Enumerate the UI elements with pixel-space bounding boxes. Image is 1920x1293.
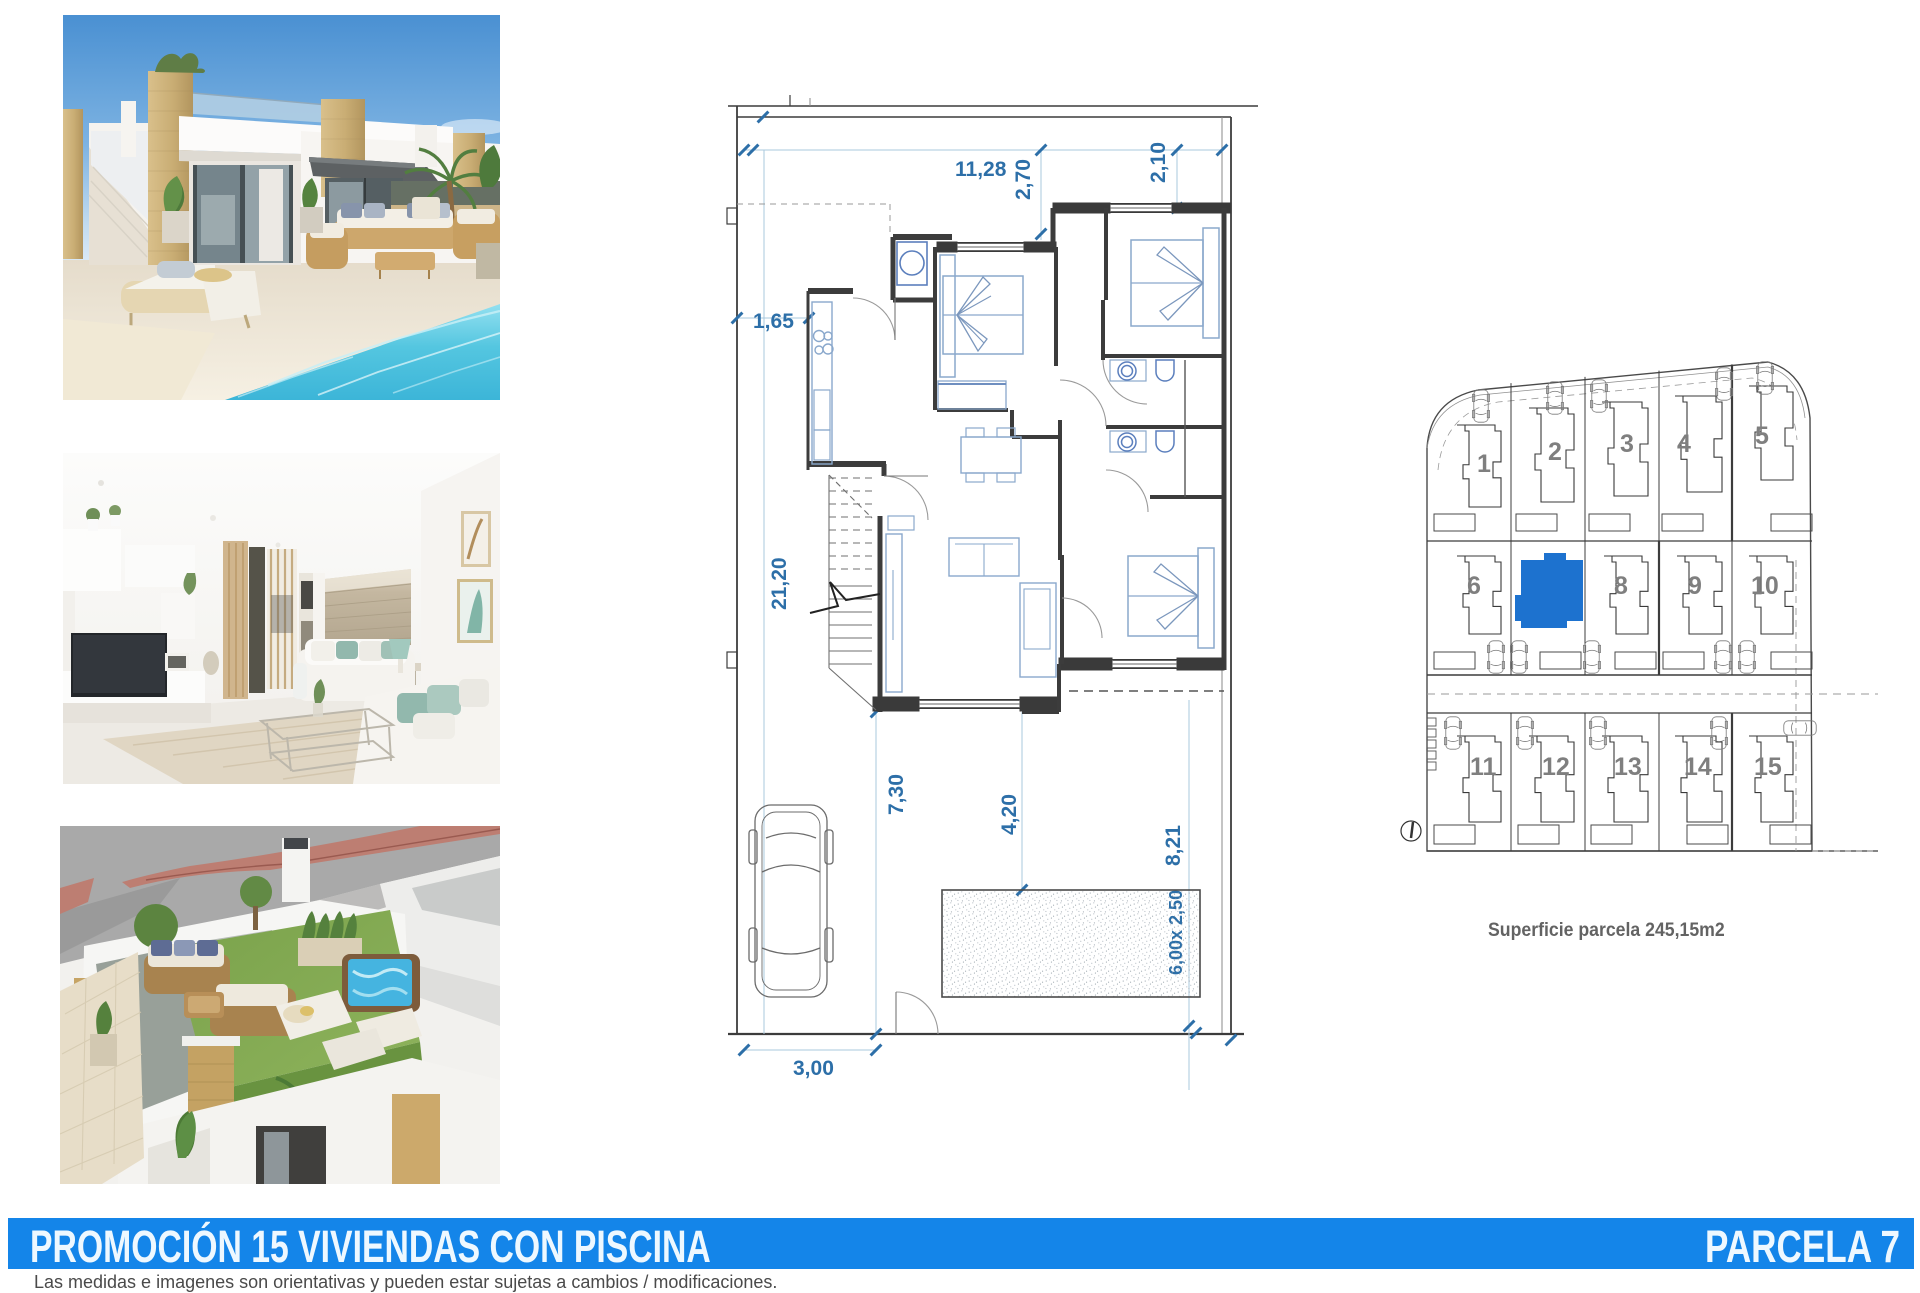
svg-text:7,30: 7,30 bbox=[885, 774, 908, 815]
svg-text:6: 6 bbox=[1467, 572, 1481, 600]
svg-text:4,20: 4,20 bbox=[998, 794, 1021, 835]
svg-text:8: 8 bbox=[1614, 572, 1628, 600]
svg-text:12: 12 bbox=[1542, 753, 1570, 781]
svg-text:13: 13 bbox=[1614, 753, 1642, 781]
svg-text:15: 15 bbox=[1754, 753, 1782, 781]
svg-text:21,20: 21,20 bbox=[768, 557, 791, 610]
svg-text:3,00: 3,00 bbox=[793, 1057, 834, 1080]
svg-text:8,21: 8,21 bbox=[1162, 825, 1185, 866]
svg-text:5: 5 bbox=[1755, 422, 1769, 450]
svg-text:2,10: 2,10 bbox=[1147, 142, 1170, 183]
svg-text:11: 11 bbox=[1470, 753, 1497, 781]
svg-text:10: 10 bbox=[1751, 572, 1779, 600]
svg-text:1: 1 bbox=[1477, 450, 1491, 478]
svg-text:14: 14 bbox=[1684, 753, 1712, 781]
svg-text:3: 3 bbox=[1620, 430, 1634, 458]
svg-text:2: 2 bbox=[1548, 438, 1562, 466]
svg-text:9: 9 bbox=[1688, 572, 1702, 600]
svg-text:4: 4 bbox=[1677, 430, 1691, 458]
svg-text:2,70: 2,70 bbox=[1012, 159, 1035, 200]
svg-text:1,65: 1,65 bbox=[753, 310, 794, 333]
svg-text:11,28: 11,28 bbox=[955, 158, 1007, 181]
